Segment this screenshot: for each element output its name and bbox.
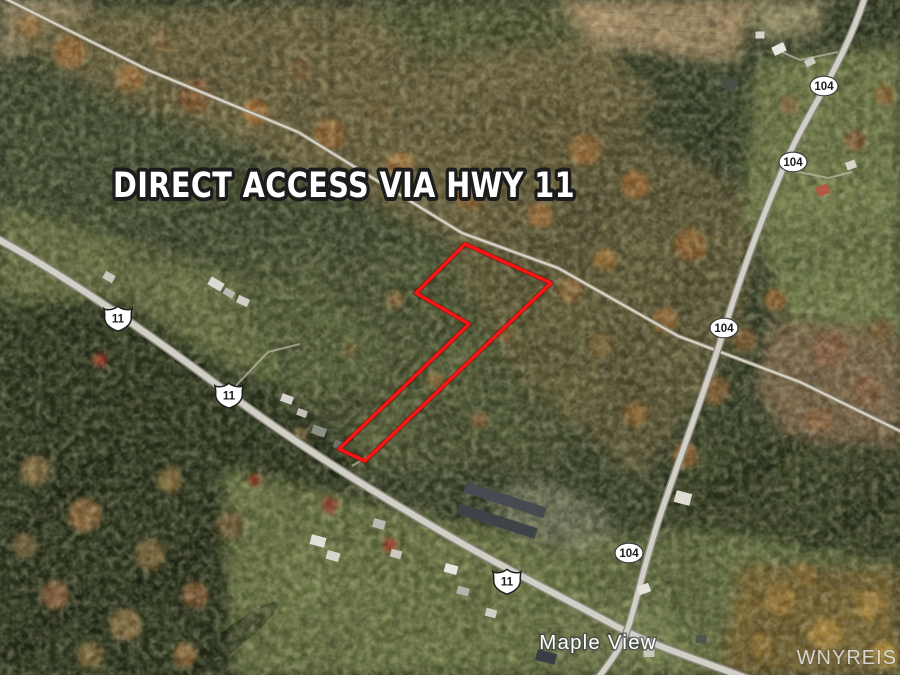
us-route-11-label: 11	[112, 313, 125, 325]
ny-route-104-label: 104	[783, 157, 803, 169]
headline-text: DIRECT ACCESS VIA HWY 11	[113, 166, 575, 206]
us-route-11-label: 11	[501, 576, 514, 588]
ny-route-104-label: 104	[814, 81, 834, 93]
watermark-wnyreis: WNYREIS	[797, 647, 897, 669]
ny-route-104-shield: 104	[810, 76, 838, 96]
ny-route-104-shield: 104	[779, 152, 807, 172]
ny-route-104-label: 104	[619, 548, 639, 560]
us-route-11-label: 11	[223, 390, 236, 402]
canopy-noise-light	[0, 0, 900, 675]
aerial-map-canvas: 11 11 11 104 104 104 104 DIRECT ACCESS V…	[0, 0, 900, 675]
place-label-maple-view: Maple View	[539, 631, 657, 654]
ny-route-104-label: 104	[714, 323, 734, 335]
aerial-property-photo: 11 11 11 104 104 104 104 DIRECT ACCESS V…	[0, 0, 900, 675]
ny-route-104-shield: 104	[710, 318, 738, 338]
ny-route-104-shield: 104	[615, 543, 643, 563]
